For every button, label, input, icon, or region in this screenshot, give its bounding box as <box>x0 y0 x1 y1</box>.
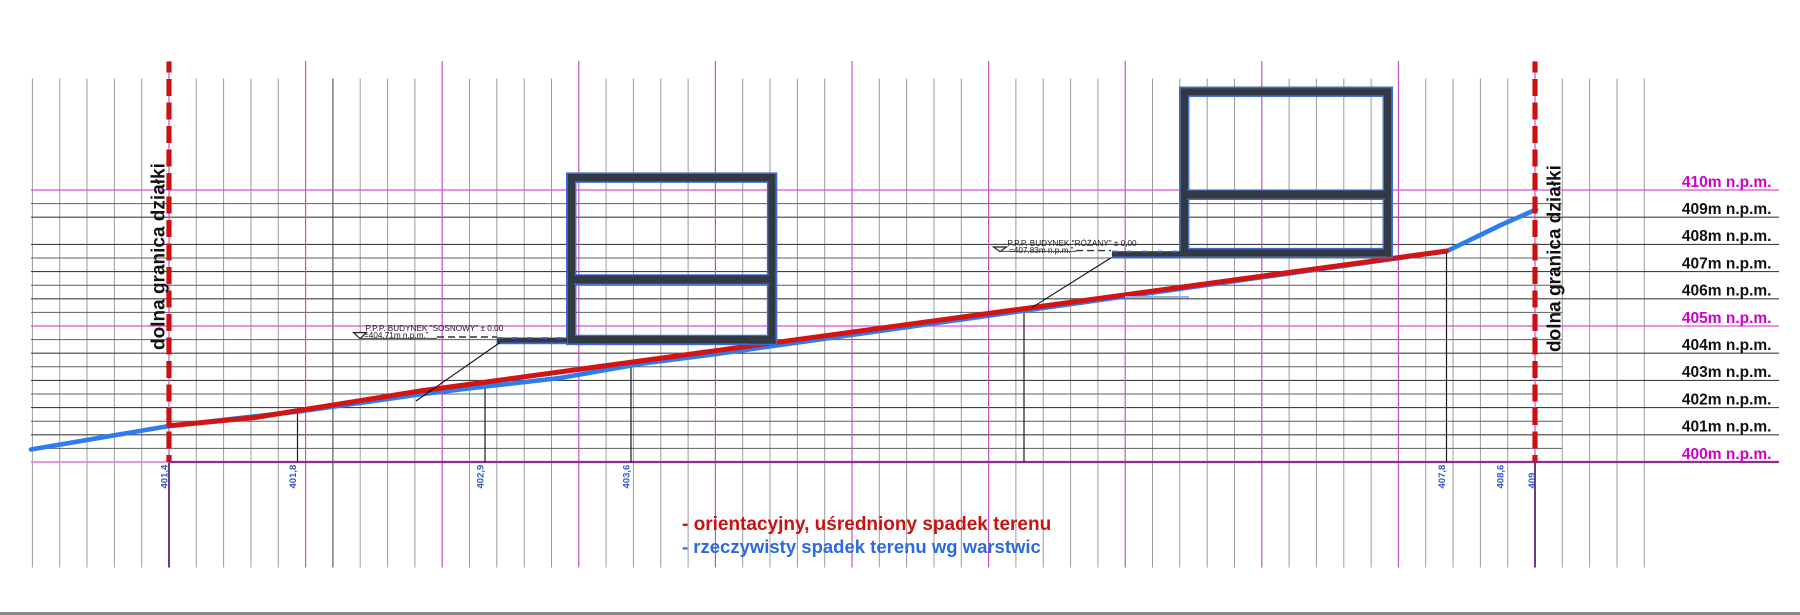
svg-text:=407,83m n.p.m.”: =407,83m n.p.m.” <box>1009 246 1074 255</box>
svg-text:409m n.p.m.: 409m n.p.m. <box>1682 201 1772 218</box>
svg-text:405m n.p.m.: 405m n.p.m. <box>1682 310 1772 327</box>
svg-text:401m n.p.m.: 401m n.p.m. <box>1682 419 1772 436</box>
svg-text:407,8: 407,8 <box>1437 465 1448 489</box>
svg-text:400m n.p.m.: 400m n.p.m. <box>1682 446 1772 463</box>
svg-text:401,4: 401,4 <box>160 464 171 488</box>
svg-text:408,6: 408,6 <box>1496 465 1507 489</box>
svg-text:404m n.p.m.: 404m n.p.m. <box>1682 337 1772 354</box>
svg-text:406m n.p.m.: 406m n.p.m. <box>1682 283 1772 300</box>
svg-text:403,6: 403,6 <box>622 465 633 489</box>
svg-text:dolna granica działki: dolna granica działki <box>1545 165 1566 352</box>
svg-text:401,8: 401,8 <box>288 465 299 489</box>
svg-text:402,9: 402,9 <box>476 465 487 489</box>
svg-text:- rzeczywisty spadek terenu wg: - rzeczywisty spadek terenu wg warstwic <box>682 536 1041 557</box>
svg-text:407m n.p.m.: 407m n.p.m. <box>1682 255 1772 272</box>
svg-text:403m n.p.m.: 403m n.p.m. <box>1682 364 1772 381</box>
svg-text:409: 409 <box>1527 473 1538 489</box>
svg-text:410m n.p.m.: 410m n.p.m. <box>1682 174 1772 191</box>
svg-text:- orientacyjny, uśredniony spa: - orientacyjny, uśredniony spadek terenu <box>682 514 1051 535</box>
svg-text:408m n.p.m.: 408m n.p.m. <box>1682 228 1772 245</box>
svg-text:dolna granica działki: dolna granica działki <box>149 163 170 350</box>
svg-text:=404,71m n.p.m.”: =404,71m n.p.m.” <box>364 331 429 340</box>
svg-text:402m n.p.m.: 402m n.p.m. <box>1682 391 1772 408</box>
